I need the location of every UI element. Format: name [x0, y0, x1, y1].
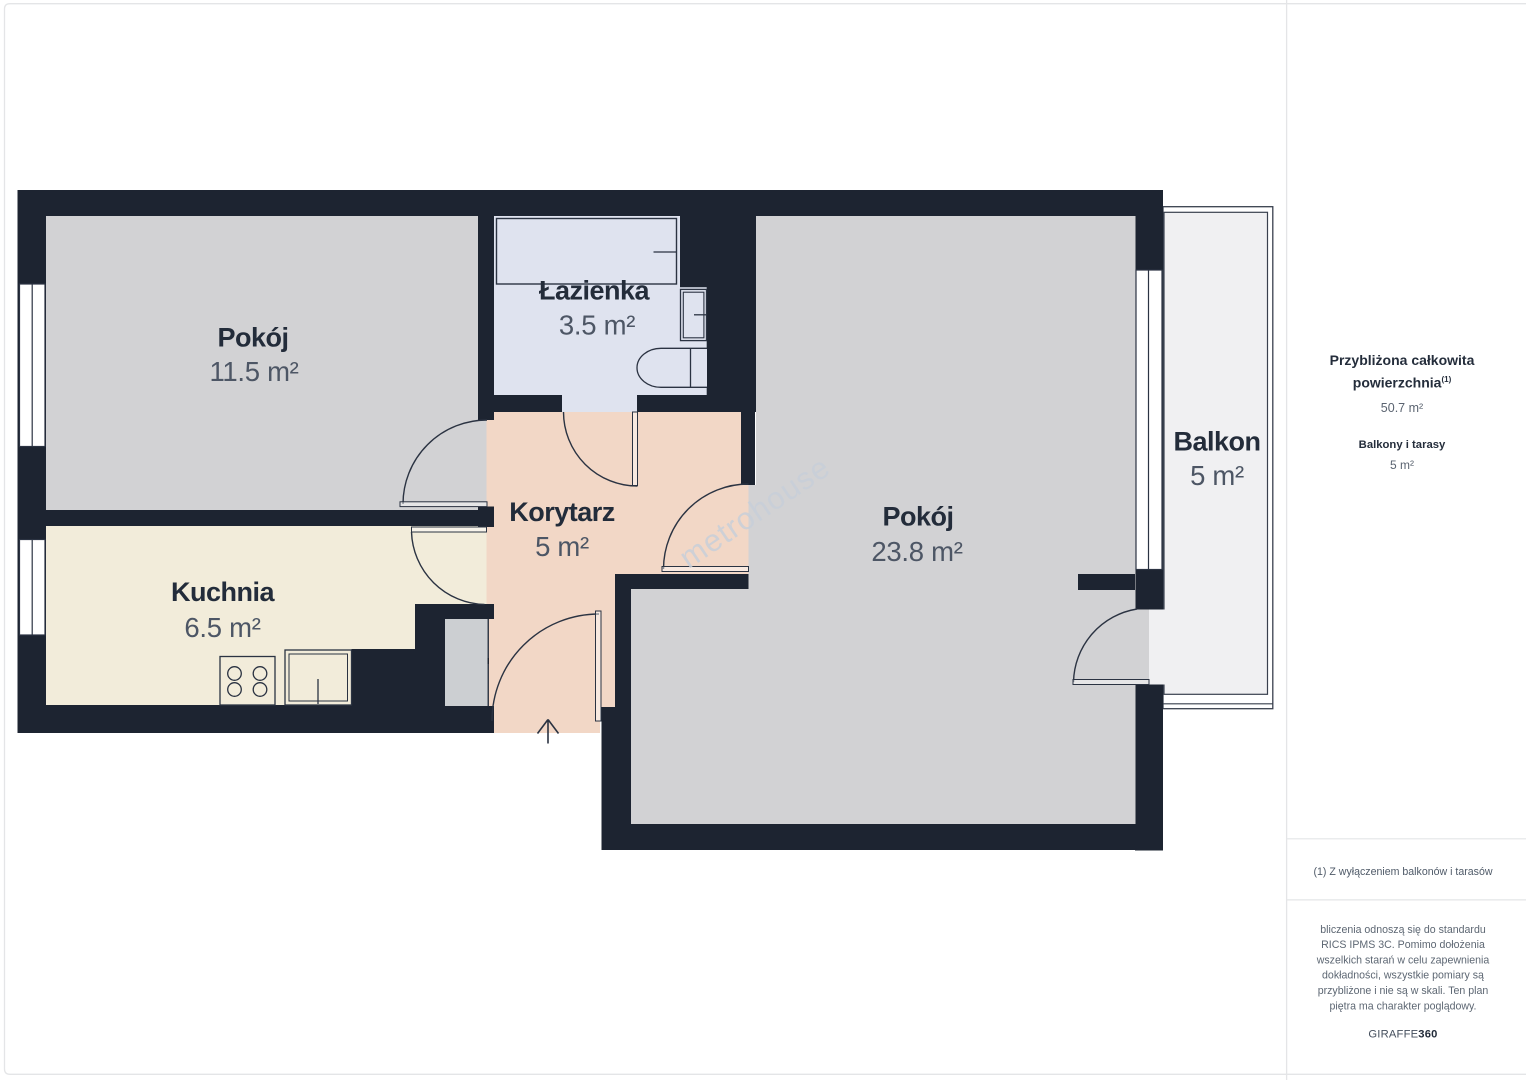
svg-text:Korytarz: Korytarz [509, 497, 615, 527]
svg-text:50.7 m²: 50.7 m² [1381, 401, 1423, 415]
svg-text:Pokój: Pokój [217, 323, 288, 353]
svg-text:bliczenia odnoszą się do stand: bliczenia odnoszą się do standardu [1320, 924, 1486, 936]
svg-text:3.5 m²: 3.5 m² [559, 310, 635, 341]
svg-text:5 m²: 5 m² [1390, 458, 1414, 472]
svg-text:przybliżone i nie są w skali.: przybliżone i nie są w skali. Ten plan [1318, 985, 1489, 997]
svg-text:GIRAFFE360: GIRAFFE360 [1368, 1029, 1437, 1041]
svg-text:Kuchnia: Kuchnia [171, 577, 275, 607]
svg-text:11.5 m²: 11.5 m² [209, 356, 298, 387]
svg-text:(1) Z wyłączeniem balkonów i t: (1) Z wyłączeniem balkonów i tarasów [1314, 866, 1493, 878]
svg-text:RICS IPMS 3C. Pomimo dołożenia: RICS IPMS 3C. Pomimo dołożenia [1321, 939, 1485, 951]
svg-text:Balkon: Balkon [1173, 427, 1260, 457]
svg-text:Przybliżona całkowita: Przybliżona całkowita [1330, 352, 1475, 368]
svg-text:dokładności, wszystkie pomiary: dokładności, wszystkie pomiary są [1322, 970, 1484, 982]
svg-text:Balkony i tarasy: Balkony i tarasy [1359, 439, 1446, 451]
svg-text:wszelkich starań w celu zapewn: wszelkich starań w celu zapewnienia [1316, 955, 1490, 967]
svg-text:powierzchnia(1): powierzchnia(1) [1353, 375, 1452, 391]
svg-text:Łazienka: Łazienka [539, 276, 651, 306]
svg-text:5 m²: 5 m² [1190, 460, 1244, 491]
svg-text:5 m²: 5 m² [535, 531, 589, 562]
svg-text:6.5 m²: 6.5 m² [184, 612, 260, 643]
svg-text:23.8 m²: 23.8 m² [871, 536, 962, 567]
svg-text:piętra ma charakter poglądowy.: piętra ma charakter poglądowy. [1329, 1001, 1476, 1013]
svg-text:Pokój: Pokój [882, 502, 953, 532]
